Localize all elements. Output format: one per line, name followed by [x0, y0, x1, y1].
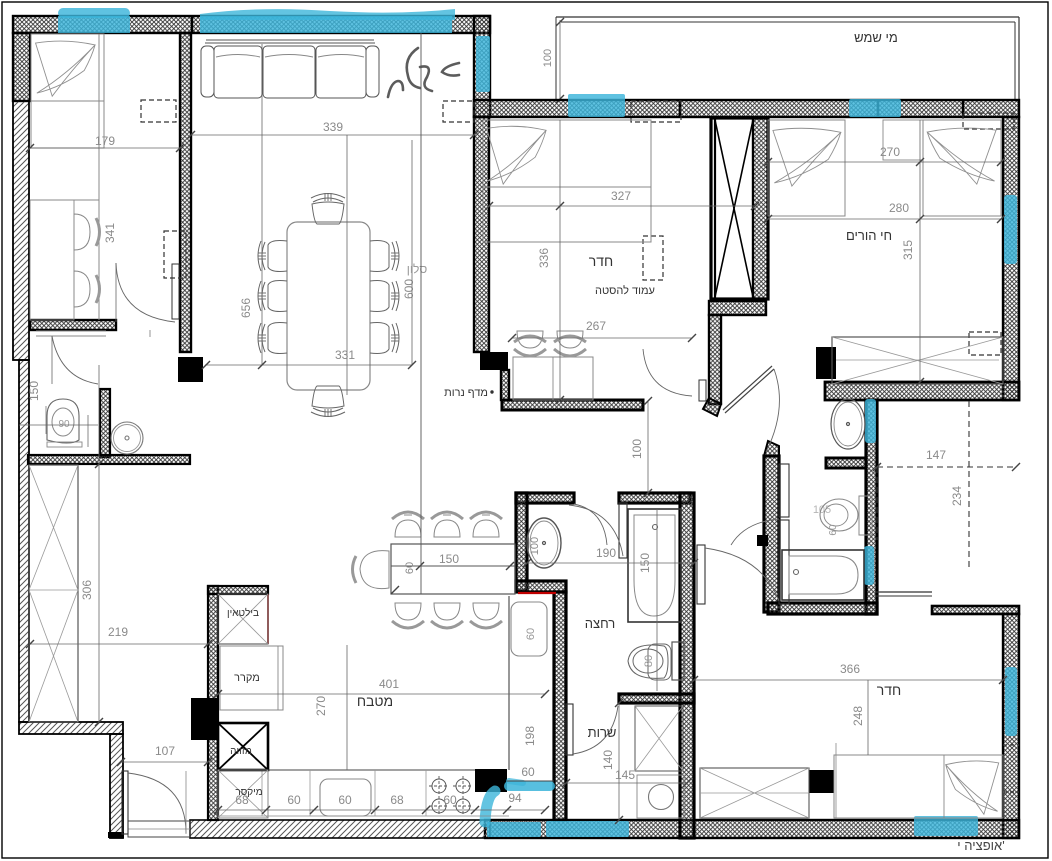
svg-text:150: 150 [27, 381, 41, 401]
svg-text:שרות: שרות [588, 725, 617, 740]
svg-text:מטבח: מטבח [357, 693, 393, 709]
svg-text:248: 248 [851, 706, 865, 726]
svg-text:341: 341 [103, 223, 117, 243]
svg-text:60: 60 [828, 524, 839, 536]
svg-text:60: 60 [404, 562, 416, 574]
svg-text:656: 656 [239, 298, 253, 318]
svg-text:401: 401 [379, 677, 399, 691]
svg-text:366: 366 [840, 662, 860, 676]
svg-text:60: 60 [338, 793, 352, 807]
svg-text:עמוד להסטה: עמוד להסטה [595, 284, 655, 297]
svg-text:179: 179 [95, 134, 115, 148]
svg-text:107: 107 [155, 744, 175, 758]
svg-text:339: 339 [323, 120, 343, 134]
svg-text:60: 60 [525, 628, 537, 640]
svg-text:מי שמש: מי שמש [854, 30, 898, 45]
svg-text:100: 100 [529, 537, 541, 555]
svg-text:בילטאין: בילטאין [227, 607, 259, 619]
svg-text:140: 140 [601, 750, 615, 770]
svg-text:מקרר: מקרר [234, 672, 260, 684]
svg-text:94: 94 [508, 791, 522, 805]
svg-text:אופציה י': אופציה י' [957, 838, 1004, 853]
svg-text:306: 306 [80, 580, 94, 600]
svg-text:80: 80 [643, 655, 655, 667]
svg-text:150: 150 [439, 552, 459, 566]
svg-text:280: 280 [889, 201, 909, 215]
svg-text:600: 600 [402, 279, 416, 299]
svg-text:270: 270 [314, 696, 328, 716]
svg-text:198: 198 [523, 726, 537, 746]
svg-text:100: 100 [630, 439, 644, 459]
svg-text:190: 190 [596, 546, 616, 560]
svg-text:רחצה: רחצה [585, 616, 615, 631]
svg-text:327: 327 [611, 189, 631, 203]
svg-text:145: 145 [615, 768, 635, 782]
svg-text:100: 100 [542, 49, 554, 67]
svg-text:150: 150 [638, 553, 652, 573]
svg-text:מזווה: מזווה [230, 746, 252, 757]
svg-text:חדר: חדר [877, 682, 901, 698]
svg-text:105: 105 [813, 504, 831, 516]
svg-text:147: 147 [926, 448, 946, 462]
svg-text:מיקסר: מיקסר [235, 787, 262, 798]
svg-text:68: 68 [390, 793, 404, 807]
svg-text:סלון: סלון [407, 262, 428, 276]
svg-text:90: 90 [58, 419, 70, 430]
svg-text:חי הורים: חי הורים [846, 228, 892, 243]
svg-text:336: 336 [537, 248, 551, 268]
svg-text:60: 60 [521, 765, 535, 779]
svg-text:315: 315 [901, 240, 915, 260]
svg-text:60: 60 [443, 793, 457, 807]
svg-text:60: 60 [287, 793, 301, 807]
svg-text:219: 219 [108, 625, 128, 639]
svg-text:מדף נרות: מדף נרות [444, 387, 488, 399]
svg-text:234: 234 [950, 486, 964, 506]
svg-text:267: 267 [586, 319, 606, 333]
svg-text:331: 331 [335, 348, 355, 362]
svg-text:חדר: חדר [589, 253, 613, 269]
svg-text:270: 270 [880, 145, 900, 159]
